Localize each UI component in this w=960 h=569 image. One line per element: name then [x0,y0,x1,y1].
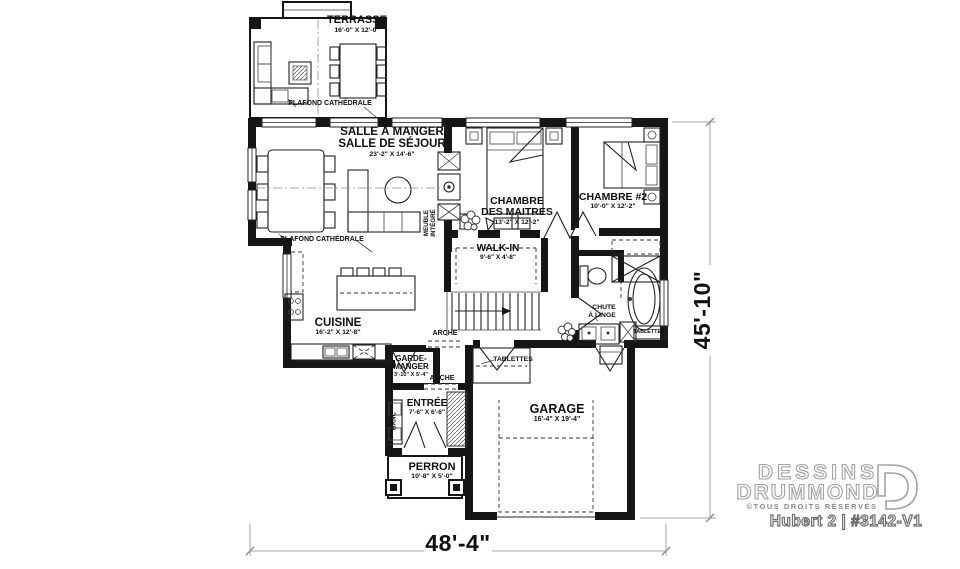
label-chute-1: CHUTE [592,304,615,312]
label-plafond-cathedrale-terrasse: PLAFOND CATHÉDRALE [288,100,371,108]
label-cuisine: CUISINE [315,317,362,330]
label-chambre-maitres-2: DES MAITRES [481,207,553,219]
interior-walls [385,127,668,390]
label-garage-dims: 16'-4" X 19'-4" [534,416,581,424]
label-garde-manger-2: MANGER [393,363,429,372]
terrace-furniture [254,42,386,104]
label-plafond-cathedrale-sejour: PLAFOND CATHÉDRALE [280,236,363,244]
label-perron: PERRON [408,461,455,473]
meuble-line1: MEUBLE [423,210,430,236]
label-entree: ENTRÉE [407,398,448,409]
label-terrasse: TERRASSE [327,14,387,26]
label-chambre-maitres-dims: 13'-2" X 12'-2" [494,219,539,227]
stairs [447,292,541,336]
label-tablettes-garage: TABLETTES [493,356,533,364]
label-cuisine-dims: 16'-2" X 12'-8" [315,329,360,337]
sofa-sectional [348,170,420,232]
label-chambre2-dims: 10'-0" X 12'-2" [590,203,635,211]
label-terrasse-dims: 16'-0" X 12'-0" [334,27,379,35]
label-walk-in: WALK-IN [477,243,520,254]
label-salle-de-sejour: SALLE DE SÉJOUR [338,138,445,151]
built-in-unit [438,152,460,220]
label-banc: BANC [392,412,399,430]
copyright-text: ©TOUS DROITS RÉSERVÉS [747,503,878,511]
drummond-logo-mark [878,465,917,509]
dimension-width: 48'-4" [425,531,490,557]
label-walk-in-dims: 9'-6" X 4'-8" [480,254,516,261]
kitchen-fixtures [285,252,415,360]
label-chute-2: À LINGE [588,312,616,320]
windows [248,118,668,326]
dimension-height: 45'-10" [690,271,716,350]
label-meuble-integre: MEUBLE INTÉGRÉ [424,209,438,237]
floor-plan-page: TERRASSE 16'-0" X 12'-0" PLAFOND CATHÉDR… [0,0,960,569]
garage-details [497,346,622,520]
label-arche-entree: ARCHE [430,375,455,383]
label-arche-hall: ARCHE [433,330,458,338]
dining-table [257,150,335,232]
label-salle-dims: 23'-2" X 14'-6" [369,151,414,159]
logo-drummond: DRUMMOND [736,481,879,505]
label-garage: GARAGE [530,402,585,416]
label-tablettes-bain: TABLETTES [633,329,664,335]
label-entree-dims: 7'-6" X 6'-6" [409,409,445,416]
plan-model-number: Hubert 2 | #3142-V1 [770,513,923,530]
dimension-lines [246,118,716,556]
label-garde-manger-dims: 3'-10" X 5'-4" [394,372,428,378]
label-perron-dims: 10'-8" X 5'-0" [411,473,452,481]
label-chambre2: CHAMBRE #2 [579,192,647,204]
label-salle-a-manger: SALLE À MANGER [340,126,444,139]
meuble-line2: INTÉGRÉ [430,209,437,237]
